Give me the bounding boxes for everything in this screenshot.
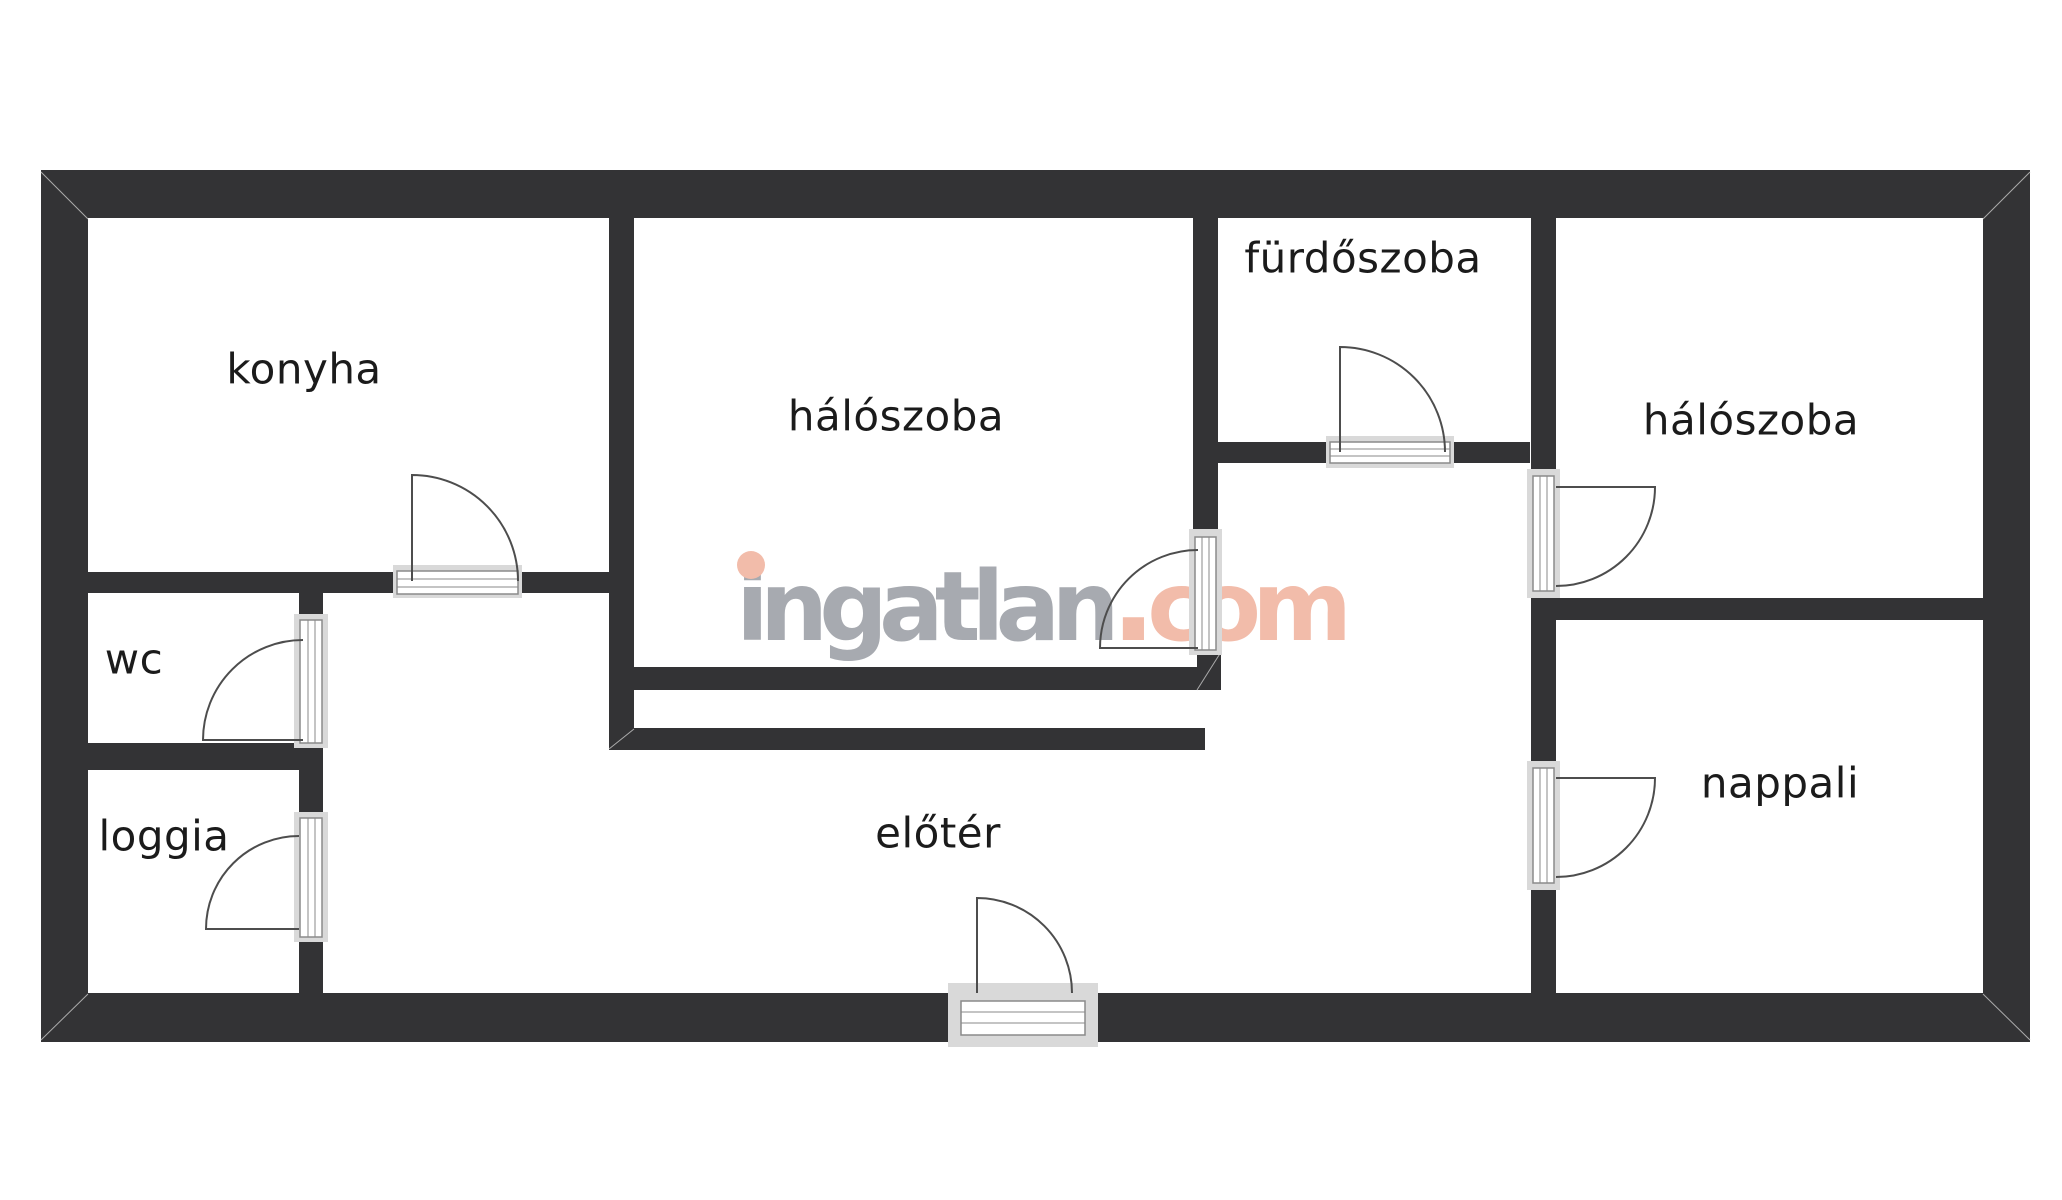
door-entrance	[977, 898, 1072, 993]
door-sill-haloszoba	[1189, 529, 1222, 655]
door-wc	[203, 640, 303, 740]
door-nappali	[1556, 778, 1655, 877]
door-haloszoba2	[1556, 487, 1655, 586]
wall-outer-left	[41, 170, 88, 1042]
door-sill-wc	[294, 614, 328, 748]
room-label-wc: wc	[105, 635, 163, 684]
floorplan-drawing	[0, 0, 2062, 1200]
wall-konyha-south	[88, 572, 609, 593]
sill-inner	[300, 818, 322, 937]
sill-inner	[1533, 476, 1554, 591]
door-sill-haloszoba2	[1527, 469, 1560, 598]
sill-inner	[1195, 537, 1216, 650]
wall-konyha-haloszoba	[609, 218, 634, 750]
wall-eloter-north	[634, 728, 1205, 750]
room-label-nappali: nappali	[1701, 759, 1859, 808]
room-label-furdoszoba: fürdőszoba	[1244, 234, 1481, 283]
room-label-loggia: loggia	[98, 812, 229, 861]
door-sill-furdoszoba	[1326, 436, 1454, 468]
wall-outer-top	[41, 170, 2030, 218]
door-sill-entrance	[948, 983, 1098, 1047]
sill-inner	[1533, 768, 1554, 883]
floorplan-canvas: ingatlan.com	[0, 0, 2062, 1200]
door-haloszoba	[1100, 550, 1198, 648]
room-label-haloszoba2: hálószoba	[1643, 396, 1859, 445]
sill-inner	[961, 1001, 1085, 1035]
wall-outer-right	[1983, 170, 2030, 1042]
door-sill-loggia	[294, 812, 328, 942]
room-label-eloter: előtér	[875, 809, 1001, 858]
walls	[41, 170, 2030, 1042]
sill-inner	[300, 620, 322, 743]
wall-wc-loggia-divider	[88, 743, 323, 770]
sill-inner	[397, 571, 518, 594]
door-sill-nappali	[1527, 761, 1560, 890]
wall-haloszoba-south	[634, 667, 1221, 690]
room-label-konyha: konyha	[226, 345, 381, 394]
sill-inner	[1330, 442, 1450, 463]
room-label-haloszoba: hálószoba	[788, 392, 1004, 441]
wall-haloszoba2-nappali	[1531, 598, 1983, 620]
